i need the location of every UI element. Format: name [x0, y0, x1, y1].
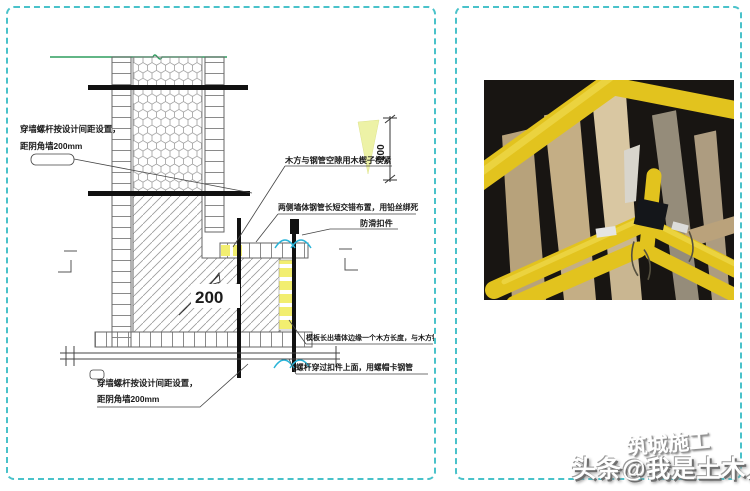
site-photo-graphic [484, 80, 734, 300]
left-diagram-panel: 200 200 穿墙螺杆按设计间距设置， 距阴角墙200mm 木方与钢管空隙用木… [6, 6, 436, 480]
annotation-tie-bottom-line2: 距阴角墙200mm [97, 394, 159, 404]
waler-bar-top [88, 85, 248, 90]
annotation-panel-extend: 模板长出墙体边缘一个木方长度，与木方钉在一起 [306, 333, 434, 342]
wood-cell [221, 245, 230, 256]
annotation-stagger: 两侧墙体钢管长短交错布置，用铅丝绑死 [278, 202, 419, 212]
callout-bubble-top [31, 154, 74, 165]
break-mark-left [58, 251, 77, 272]
break-mark-right [339, 249, 358, 270]
annotation-tie-bottom-line1: 穿墙螺杆按设计间距设置， [97, 378, 198, 388]
right-photo-panel [455, 6, 742, 480]
wood-batten-strip [279, 260, 294, 330]
dim-corner-label: 200 [195, 288, 223, 307]
annotation-bolt: 螺杆穿过扣件上面，用螺帽卡钢管 [296, 362, 413, 372]
watermark-main: 头条@我是土木人 [572, 449, 750, 484]
anti-slip-coupler-mark [290, 219, 299, 234]
waler-bar-bottom [88, 191, 250, 196]
annotation-tie-top-line2: 距阴角墙200mm [20, 141, 82, 151]
insulation-honeycomb-layer [133, 57, 202, 194]
formwork-corner-diagram: 200 200 穿墙螺杆按设计间距设置， 距阴角墙200mm 木方与钢管空隙用木… [8, 8, 434, 478]
annotation-tie-top-line1: 穿墙螺杆按设计间距设置， [20, 124, 121, 134]
formwork-panel-left [112, 57, 131, 347]
site-photo [484, 80, 734, 300]
annotation-wedge: 木方与钢管空隙用木楔子楔紧 [284, 155, 392, 165]
annotation-antislip: 防滑扣件 [360, 218, 393, 228]
formwork-panel-right [205, 57, 224, 232]
corner-formwork-bottom [95, 332, 312, 347]
